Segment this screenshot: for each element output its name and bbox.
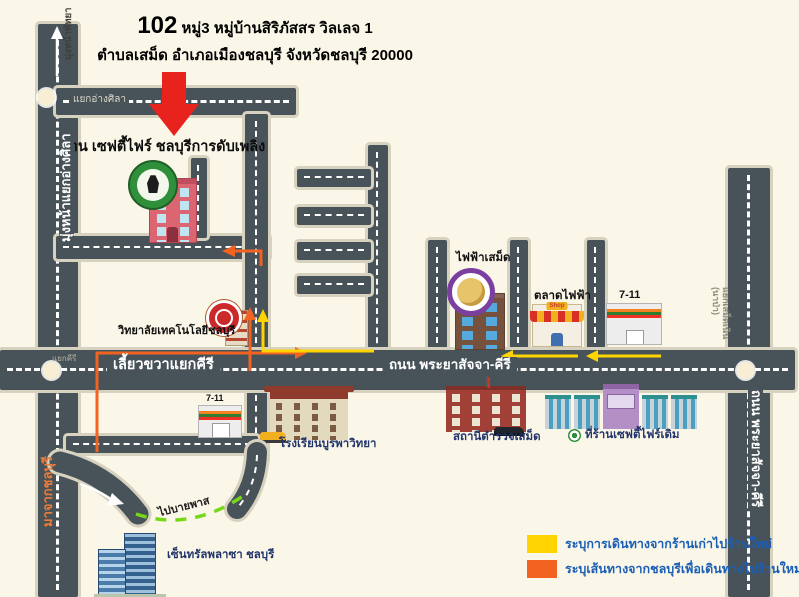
road-mid-vertical-2 bbox=[510, 240, 528, 360]
seven-eleven-store-left bbox=[198, 405, 242, 438]
central-plaza-building bbox=[98, 533, 162, 595]
road-centerline bbox=[376, 152, 378, 353]
old-shop-label: ที่ร้านเซฟตี้ไฟร์เดิม bbox=[585, 429, 680, 442]
tower bbox=[124, 533, 156, 597]
police-station-building bbox=[446, 386, 526, 432]
road-comb-vertical bbox=[368, 145, 388, 360]
legend-item-from-chonburi: ระบุเส้นทางจากชลบุรีเพื่อเดินทางไปร้านให… bbox=[527, 559, 799, 579]
road-centerline bbox=[517, 247, 519, 353]
angsila-junction-label: แยกอ่างศิลา bbox=[70, 94, 129, 106]
electricity-office-label: ไฟฟ้าเสม็ด bbox=[456, 252, 511, 265]
toward-pattaya-label: มุ่งหน้าพัทยา bbox=[64, 8, 75, 60]
right-junction-line1: แยกเสม็ดเนิน bbox=[721, 287, 731, 339]
school-label: โรงเรียนบูรพาวิทยา bbox=[279, 438, 376, 451]
address-title: 102 หมู่3 หมู่บ้านสิริภัสสร วิลเลจ 1 ตำบ… bbox=[60, 12, 450, 67]
right-junction-label: แยกเสม็ดเนิน (นาป่า) bbox=[710, 287, 731, 339]
map-canvas: Shop bbox=[0, 0, 799, 597]
old-shop-label-row: ที่ร้านเซฟตี้ไฟร์เดิม bbox=[568, 429, 680, 442]
address-number: 102 bbox=[137, 12, 177, 39]
electricity-office-logo-icon bbox=[447, 268, 495, 316]
seven-eleven-stripes-icon bbox=[199, 411, 241, 420]
shophouse bbox=[671, 395, 697, 429]
legend-label: ระบุการเดินทางจากร้านเก่าไปร้านใหม่ bbox=[565, 534, 772, 554]
right-road-name-label: ถนน พระยาสัจจา-คีรี bbox=[748, 386, 763, 511]
safety-fire-logo-icon bbox=[128, 160, 178, 210]
junction-dot-right bbox=[737, 362, 754, 379]
road-bottom-soi bbox=[66, 436, 258, 453]
road-centerline bbox=[304, 176, 364, 178]
new-shop-label: ร้าน เซฟตี้ไฟร์ ชลบุรีการดับเพลิง bbox=[62, 139, 265, 156]
market-building: Shop bbox=[532, 304, 582, 347]
road-side-street-1 bbox=[297, 169, 371, 187]
turn-right-kiri-label: เลี้ยวขวาแยกคีรี bbox=[107, 357, 220, 374]
from-chonburi-label: มาจากชลบุรี bbox=[41, 456, 56, 527]
main-road-name-label: ถนน พระยาสัจจา-คีรี bbox=[383, 357, 517, 373]
shophouse bbox=[574, 395, 600, 429]
branch-direction-arrow bbox=[80, 484, 112, 500]
to-bypass-label: ไปบายพาส bbox=[157, 495, 211, 520]
road-centerline bbox=[63, 246, 262, 248]
legend-swatch-orange bbox=[527, 560, 557, 578]
tower bbox=[98, 549, 126, 595]
angled-soi-centerline bbox=[239, 455, 257, 506]
junction-dot-kiri bbox=[43, 362, 60, 379]
school-building bbox=[270, 392, 348, 440]
road-centerline bbox=[73, 443, 251, 445]
legend-label: ระบุเส้นทางจากชลบุรีเพื่อเดินทางไปร้านให… bbox=[565, 559, 799, 579]
market-label: ตลาดไฟฟ้า bbox=[534, 290, 591, 303]
road-centerline bbox=[594, 247, 596, 353]
old-shop-building bbox=[603, 384, 639, 429]
seven-eleven-stripes-icon bbox=[607, 309, 661, 318]
central-plaza-label: เซ็นทรัลพลาซา ชลบุรี bbox=[167, 549, 274, 562]
road-side-street-4 bbox=[297, 276, 371, 294]
shophouse bbox=[545, 395, 571, 429]
college-label: วิทยาลัยเทคโนโลยีชลบุรี bbox=[118, 325, 235, 338]
road-mid-vertical-1 bbox=[428, 240, 447, 360]
branch-arrowhead-icon bbox=[107, 493, 124, 506]
shophouse bbox=[642, 395, 668, 429]
road-centerline bbox=[436, 247, 438, 353]
old-shop-row-buildings bbox=[545, 389, 697, 429]
route-old-to-new-elbow-line bbox=[263, 320, 374, 351]
seven-eleven-store-top bbox=[606, 303, 662, 345]
address-line1-text: หมู่3 หมู่บ้านสิริภัสสร วิลเลจ 1 bbox=[182, 20, 373, 37]
road-centerline bbox=[304, 214, 364, 216]
right-junction-line2: (นาป่า) bbox=[710, 287, 720, 339]
legend-swatch-yellow bbox=[527, 535, 557, 553]
road-centerline bbox=[304, 249, 364, 251]
road-centerline bbox=[255, 121, 257, 353]
address-line1: 102 หมู่3 หมู่บ้านสิริภัสสร วิลเลจ 1 bbox=[60, 12, 450, 40]
legend-item-old-to-new: ระบุการเดินทางจากร้านเก่าไปร้านใหม่ bbox=[527, 534, 799, 554]
toward-angsila-label: มุ่งหน้าแยกอ่างศิลา bbox=[59, 129, 74, 246]
seven-eleven-left-label: 7-11 bbox=[206, 393, 224, 403]
old-shop-logo-icon bbox=[568, 429, 581, 442]
market-awning bbox=[530, 311, 584, 322]
road-side-street-3 bbox=[297, 242, 371, 260]
legend: ระบุการเดินทางจากร้านเก่าไปร้านใหม่ ระบุ… bbox=[527, 534, 799, 584]
junction-dot-angsila bbox=[38, 89, 55, 106]
seven-eleven-top-label: 7-11 bbox=[619, 289, 640, 302]
road-centerline bbox=[304, 283, 364, 285]
road-side-street-2 bbox=[297, 207, 371, 225]
kiri-junction-label: แยกคีรี bbox=[52, 354, 76, 363]
police-station-label: สถานีตำรวจเสม็ด bbox=[453, 431, 541, 444]
road-centerline bbox=[197, 165, 199, 231]
address-line2: ตำบลเสม็ด อำเภอเมืองชลบุรี จังหวัดชลบุรี… bbox=[60, 43, 450, 67]
